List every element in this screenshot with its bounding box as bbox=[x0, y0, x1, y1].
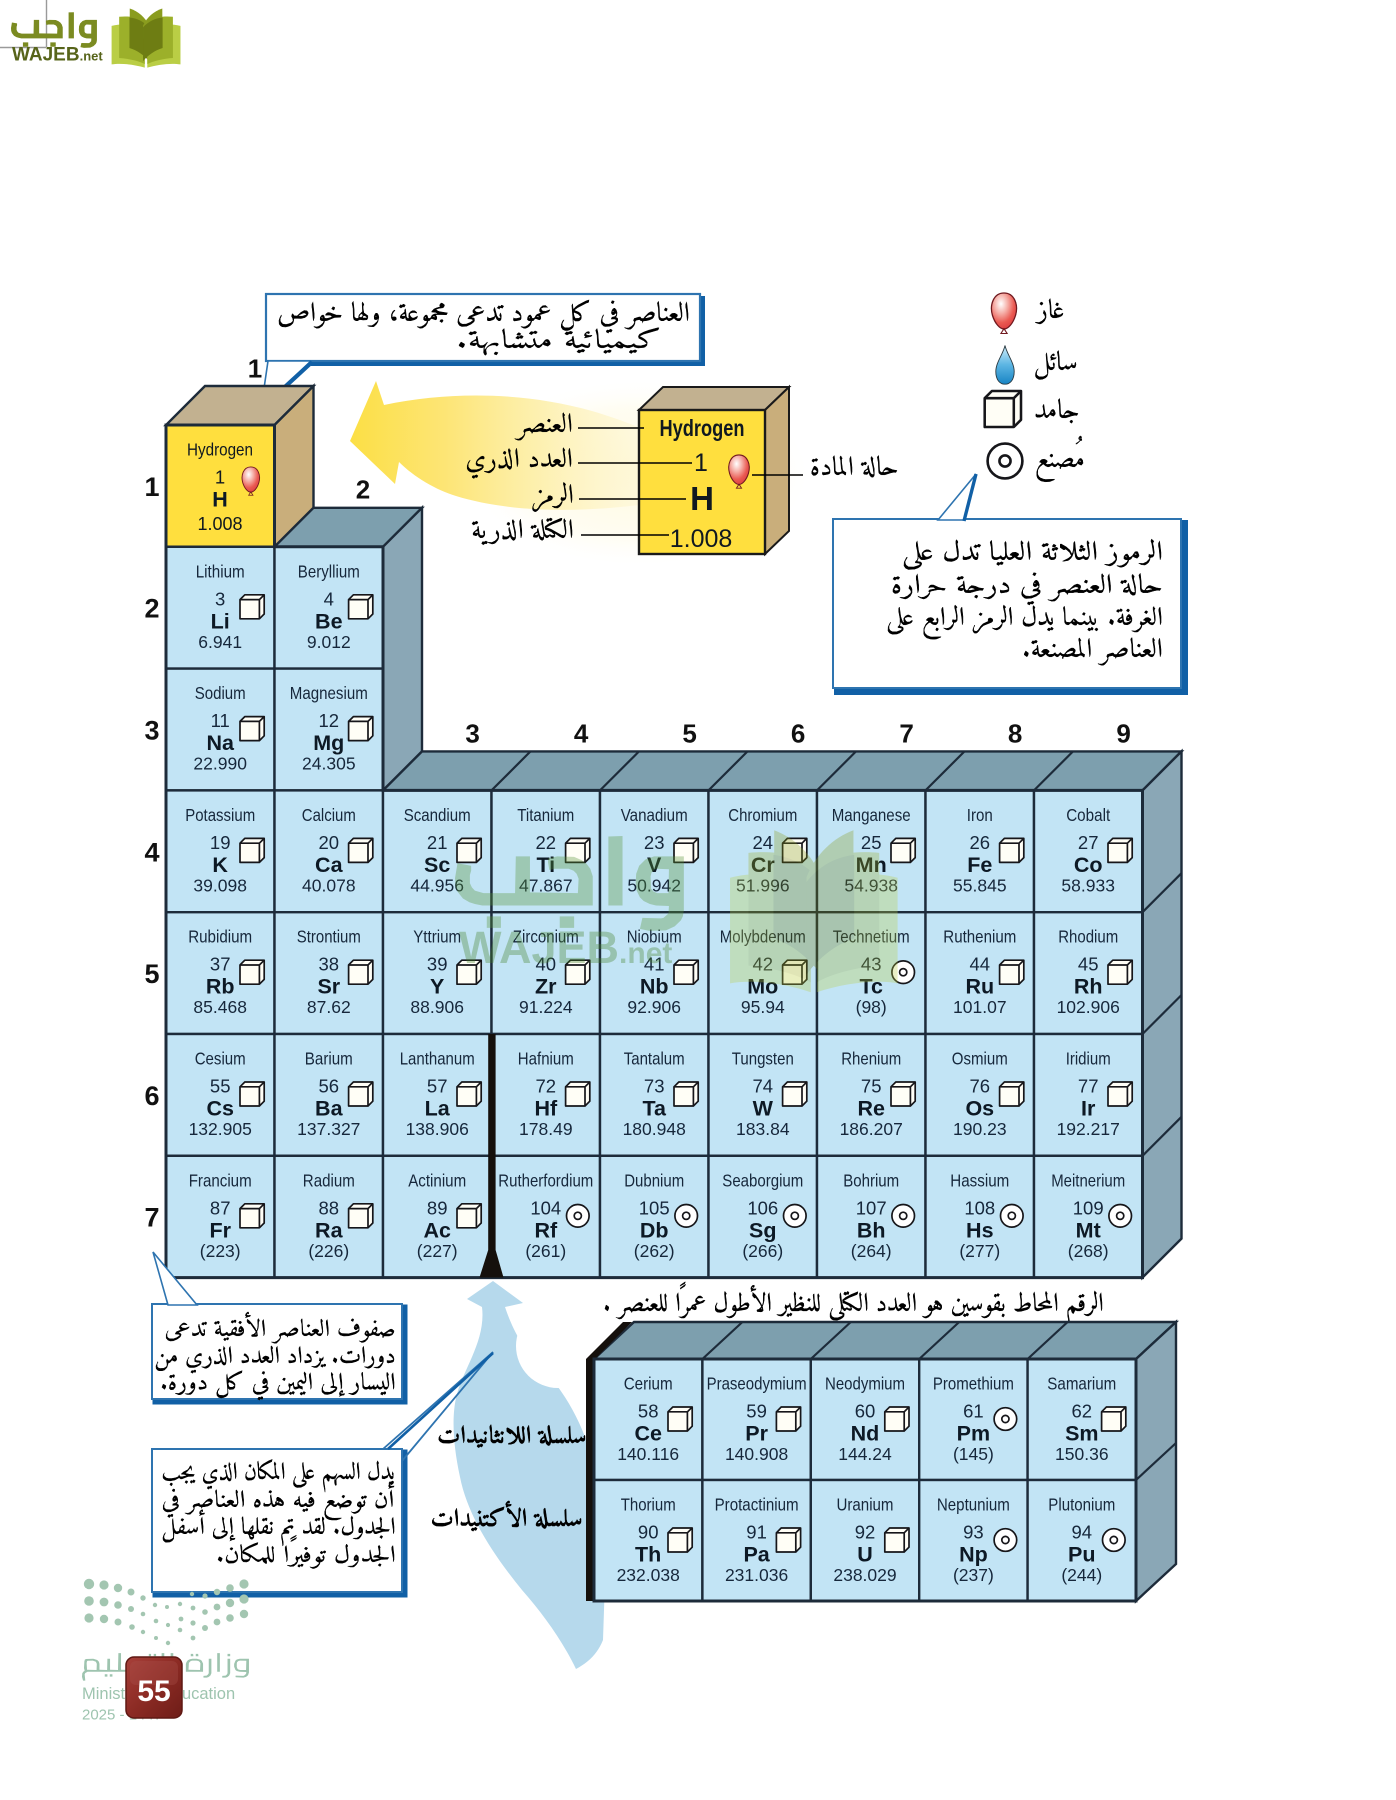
svg-text:Titanium: Titanium bbox=[517, 805, 574, 825]
svg-text:1.008: 1.008 bbox=[197, 514, 242, 534]
svg-text:55: 55 bbox=[210, 1076, 231, 1097]
svg-text:104: 104 bbox=[530, 1197, 561, 1218]
svg-text:Bohrium: Bohrium bbox=[843, 1170, 899, 1190]
svg-text:Francium: Francium bbox=[189, 1170, 252, 1190]
svg-text:59: 59 bbox=[746, 1401, 767, 1422]
svg-text:Sr: Sr bbox=[317, 975, 340, 999]
svg-text:Calcium: Calcium bbox=[302, 805, 356, 825]
svg-text:1: 1 bbox=[694, 449, 708, 477]
svg-text:Ra: Ra bbox=[315, 1218, 344, 1242]
svg-text:21: 21 bbox=[427, 832, 448, 853]
svg-text:178.49: 178.49 bbox=[519, 1119, 573, 1139]
svg-text:Iron: Iron bbox=[967, 805, 993, 825]
svg-text:H: H bbox=[212, 488, 228, 512]
svg-text:Manganese: Manganese bbox=[832, 805, 911, 825]
svg-text:73: 73 bbox=[644, 1076, 665, 1097]
svg-text:(264): (264) bbox=[851, 1241, 892, 1261]
svg-text:56: 56 bbox=[319, 1076, 340, 1097]
svg-text:5: 5 bbox=[144, 959, 159, 989]
svg-text:85.468: 85.468 bbox=[193, 997, 247, 1017]
svg-text:8: 8 bbox=[1008, 718, 1022, 748]
svg-text:94: 94 bbox=[1072, 1522, 1093, 1543]
svg-text:24.305: 24.305 bbox=[302, 754, 356, 774]
svg-text:23: 23 bbox=[644, 832, 665, 853]
svg-text:Ce: Ce bbox=[634, 1422, 662, 1446]
svg-text:Plutonium: Plutonium bbox=[1048, 1495, 1115, 1515]
svg-text:6: 6 bbox=[791, 718, 805, 748]
svg-text:Neodymium: Neodymium bbox=[825, 1374, 905, 1394]
svg-text:91.224: 91.224 bbox=[519, 997, 573, 1017]
svg-text:(262): (262) bbox=[634, 1241, 675, 1261]
svg-text:Sc: Sc bbox=[424, 853, 450, 877]
svg-text:39: 39 bbox=[427, 954, 448, 975]
svg-text:138.906: 138.906 bbox=[406, 1119, 469, 1139]
svg-text:Lithium: Lithium bbox=[196, 561, 245, 581]
svg-text:Vanadium: Vanadium bbox=[621, 805, 688, 825]
svg-text:132.905: 132.905 bbox=[189, 1119, 252, 1139]
svg-text:22: 22 bbox=[536, 832, 557, 853]
svg-text:(223): (223) bbox=[200, 1241, 241, 1261]
svg-text:Rh: Rh bbox=[1074, 975, 1103, 999]
svg-text:183.84: 183.84 bbox=[736, 1119, 790, 1139]
svg-text:45: 45 bbox=[1078, 954, 1099, 975]
svg-text:Lanthanum: Lanthanum bbox=[400, 1049, 475, 1069]
svg-text:150.36: 150.36 bbox=[1055, 1444, 1109, 1464]
svg-text:3: 3 bbox=[215, 588, 225, 609]
svg-text:(237): (237) bbox=[953, 1565, 994, 1585]
svg-text:2: 2 bbox=[144, 594, 159, 624]
svg-text:Barium: Barium bbox=[305, 1049, 353, 1069]
svg-text:Strontium: Strontium bbox=[297, 927, 361, 947]
svg-text:(266): (266) bbox=[742, 1241, 783, 1261]
svg-text:Rf: Rf bbox=[534, 1218, 558, 1242]
svg-text:25: 25 bbox=[861, 832, 882, 853]
svg-text:Y: Y bbox=[430, 975, 444, 999]
svg-text:92.906: 92.906 bbox=[627, 997, 681, 1017]
svg-text:55: 55 bbox=[137, 1675, 170, 1708]
svg-text:74: 74 bbox=[753, 1076, 774, 1097]
svg-text:61: 61 bbox=[963, 1401, 984, 1422]
svg-text:U: U bbox=[857, 1543, 873, 1567]
svg-text:Hassium: Hassium bbox=[950, 1170, 1009, 1190]
svg-text:Bh: Bh bbox=[857, 1218, 886, 1242]
svg-text:Th: Th bbox=[635, 1543, 661, 1567]
svg-text:7: 7 bbox=[144, 1203, 159, 1233]
svg-text:180.948: 180.948 bbox=[623, 1119, 686, 1139]
svg-text:Sm: Sm bbox=[1065, 1422, 1098, 1446]
svg-text:Rhodium: Rhodium bbox=[1058, 927, 1118, 947]
svg-text:Li: Li bbox=[211, 609, 230, 633]
svg-text:4: 4 bbox=[574, 718, 589, 748]
svg-text:9: 9 bbox=[1116, 718, 1130, 748]
svg-text:Na: Na bbox=[206, 731, 235, 755]
svg-text:1: 1 bbox=[248, 354, 262, 384]
svg-text:87: 87 bbox=[210, 1197, 231, 1218]
svg-text:140.908: 140.908 bbox=[725, 1444, 788, 1464]
svg-text:4: 4 bbox=[324, 588, 334, 609]
svg-text:88: 88 bbox=[319, 1197, 340, 1218]
svg-text:Ca: Ca bbox=[315, 853, 344, 877]
svg-text:Hs: Hs bbox=[966, 1218, 994, 1242]
svg-text:Ta: Ta bbox=[642, 1097, 667, 1121]
svg-text:58.933: 58.933 bbox=[1061, 875, 1115, 895]
svg-text:238.029: 238.029 bbox=[833, 1565, 896, 1585]
svg-text:105: 105 bbox=[639, 1197, 670, 1218]
svg-text:La: La bbox=[425, 1097, 451, 1121]
svg-text:Potassium: Potassium bbox=[185, 805, 255, 825]
svg-text:Uranium: Uranium bbox=[837, 1495, 894, 1515]
svg-text:Promethium: Promethium bbox=[933, 1374, 1014, 1394]
svg-text:W: W bbox=[753, 1097, 774, 1121]
svg-text:Cesium: Cesium bbox=[195, 1049, 246, 1069]
svg-text:Sg: Sg bbox=[749, 1218, 776, 1242]
svg-text:Scandium: Scandium bbox=[404, 805, 471, 825]
svg-text:1: 1 bbox=[215, 467, 225, 488]
svg-text:76: 76 bbox=[970, 1076, 991, 1097]
svg-text:4: 4 bbox=[144, 837, 159, 867]
svg-text:60: 60 bbox=[855, 1401, 876, 1422]
svg-text:57: 57 bbox=[427, 1076, 448, 1097]
svg-text:192.217: 192.217 bbox=[1057, 1119, 1120, 1139]
svg-text:20: 20 bbox=[319, 832, 340, 853]
svg-text:Cerium: Cerium bbox=[624, 1374, 673, 1394]
svg-text:Ba: Ba bbox=[315, 1097, 344, 1121]
svg-text:(261): (261) bbox=[525, 1241, 566, 1261]
svg-text:Tantalum: Tantalum bbox=[624, 1049, 685, 1069]
svg-text:Magnesium: Magnesium bbox=[290, 683, 368, 703]
svg-text:Os: Os bbox=[965, 1097, 994, 1121]
svg-text:Rb: Rb bbox=[206, 975, 235, 999]
svg-text:(227): (227) bbox=[417, 1241, 458, 1261]
svg-text:91: 91 bbox=[746, 1522, 767, 1543]
svg-text:101.07: 101.07 bbox=[953, 997, 1007, 1017]
svg-text:K: K bbox=[212, 853, 228, 877]
svg-text:7: 7 bbox=[899, 718, 913, 748]
svg-text:Pr: Pr bbox=[745, 1422, 768, 1446]
svg-text:Hf: Hf bbox=[534, 1097, 558, 1121]
svg-text:88.906: 88.906 bbox=[410, 997, 464, 1017]
svg-text:75: 75 bbox=[861, 1076, 882, 1097]
svg-text:19: 19 bbox=[210, 832, 231, 853]
svg-text:11: 11 bbox=[211, 710, 230, 731]
svg-text:Hydrogen: Hydrogen bbox=[187, 440, 253, 460]
svg-text:90: 90 bbox=[638, 1522, 659, 1543]
svg-text:1: 1 bbox=[144, 472, 159, 502]
svg-text:Radium: Radium bbox=[303, 1170, 355, 1190]
svg-text:Be: Be bbox=[315, 609, 343, 633]
svg-text:58: 58 bbox=[638, 1401, 659, 1422]
svg-text:108: 108 bbox=[964, 1197, 995, 1218]
svg-text:5: 5 bbox=[682, 718, 696, 748]
svg-text:Osmium: Osmium bbox=[952, 1049, 1008, 1069]
svg-text:Mt: Mt bbox=[1076, 1218, 1101, 1242]
svg-text:Ac: Ac bbox=[423, 1218, 451, 1242]
svg-text:40.078: 40.078 bbox=[302, 875, 356, 895]
svg-text:186.207: 186.207 bbox=[840, 1119, 903, 1139]
svg-text:Mg: Mg bbox=[313, 731, 344, 755]
svg-text:95.94: 95.94 bbox=[741, 997, 785, 1017]
svg-text:44: 44 bbox=[970, 954, 991, 975]
svg-text:24: 24 bbox=[753, 832, 774, 853]
svg-text:(145): (145) bbox=[953, 1444, 994, 1464]
svg-text:93: 93 bbox=[963, 1522, 984, 1543]
svg-text:106: 106 bbox=[747, 1197, 778, 1218]
svg-text:Ruthenium: Ruthenium bbox=[943, 927, 1016, 947]
svg-text:27: 27 bbox=[1078, 832, 1099, 853]
svg-text:Fr: Fr bbox=[209, 1218, 231, 1242]
svg-text:Iridium: Iridium bbox=[1066, 1049, 1111, 1069]
svg-text:231.036: 231.036 bbox=[725, 1565, 788, 1585]
svg-text:6.941: 6.941 bbox=[198, 632, 242, 652]
svg-text:WAJEB.net: WAJEB.net bbox=[12, 45, 103, 66]
svg-text:77: 77 bbox=[1078, 1076, 1099, 1097]
svg-text:Rubidium: Rubidium bbox=[188, 927, 252, 947]
svg-text:Hafnium: Hafnium bbox=[518, 1049, 574, 1069]
svg-text:39.098: 39.098 bbox=[193, 875, 247, 895]
svg-text:107: 107 bbox=[856, 1197, 887, 1218]
svg-text:72: 72 bbox=[536, 1076, 557, 1097]
svg-text:Rutherfordium: Rutherfordium bbox=[498, 1170, 593, 1190]
svg-text:Db: Db bbox=[640, 1218, 669, 1242]
svg-text:Fe: Fe bbox=[967, 853, 992, 877]
svg-text:(226): (226) bbox=[308, 1241, 349, 1261]
svg-text:(268): (268) bbox=[1068, 1241, 1109, 1261]
svg-text:Nb: Nb bbox=[640, 975, 669, 999]
svg-text:140.116: 140.116 bbox=[617, 1444, 679, 1464]
svg-text:12: 12 bbox=[319, 710, 340, 731]
svg-text:Neptunium: Neptunium bbox=[937, 1495, 1010, 1515]
svg-text:9.012: 9.012 bbox=[307, 632, 351, 652]
svg-text:190.23: 190.23 bbox=[953, 1119, 1007, 1139]
svg-text:Zr: Zr bbox=[535, 975, 557, 999]
svg-text:144.24: 144.24 bbox=[838, 1444, 892, 1464]
svg-text:Pm: Pm bbox=[957, 1422, 990, 1446]
svg-text:22.990: 22.990 bbox=[193, 754, 247, 774]
svg-text:3: 3 bbox=[144, 716, 159, 746]
svg-text:(244): (244) bbox=[1061, 1565, 1102, 1585]
svg-text:102.906: 102.906 bbox=[1057, 997, 1120, 1017]
svg-text:Co: Co bbox=[1074, 853, 1103, 877]
svg-text:Pu: Pu bbox=[1068, 1543, 1095, 1567]
svg-text:Actinium: Actinium bbox=[408, 1170, 466, 1190]
svg-text:109: 109 bbox=[1073, 1197, 1104, 1218]
svg-text:Beryllium: Beryllium bbox=[298, 561, 360, 581]
svg-text:Re: Re bbox=[857, 1097, 885, 1121]
svg-text:3: 3 bbox=[465, 718, 479, 748]
svg-text:(277): (277) bbox=[959, 1241, 1000, 1261]
svg-text:92: 92 bbox=[855, 1522, 876, 1543]
svg-text:55.845: 55.845 bbox=[953, 875, 1007, 895]
svg-text:Rhenium: Rhenium bbox=[841, 1049, 901, 1069]
svg-text:62: 62 bbox=[1072, 1401, 1093, 1422]
svg-text:Samarium: Samarium bbox=[1047, 1374, 1116, 1394]
svg-text:Ir: Ir bbox=[1081, 1097, 1096, 1121]
svg-text:137.327: 137.327 bbox=[297, 1119, 360, 1139]
svg-text:Thorium: Thorium bbox=[621, 1495, 676, 1515]
svg-text:Dubnium: Dubnium bbox=[624, 1170, 684, 1190]
svg-text:Nd: Nd bbox=[851, 1422, 880, 1446]
svg-text:Cs: Cs bbox=[206, 1097, 234, 1121]
svg-text:Sodium: Sodium bbox=[195, 683, 246, 703]
svg-text:Hydrogen: Hydrogen bbox=[660, 415, 745, 441]
svg-text:89: 89 bbox=[427, 1197, 448, 1218]
svg-text:38: 38 bbox=[319, 954, 340, 975]
svg-text:Praseodymium: Praseodymium bbox=[707, 1374, 807, 1394]
svg-text:Pa: Pa bbox=[743, 1543, 770, 1567]
svg-text:26: 26 bbox=[970, 832, 991, 853]
svg-text:Meitnerium: Meitnerium bbox=[1051, 1170, 1125, 1190]
svg-text:1.008: 1.008 bbox=[670, 525, 733, 553]
svg-text:Ru: Ru bbox=[965, 975, 994, 999]
svg-text:(98): (98) bbox=[856, 997, 887, 1017]
svg-text:87.62: 87.62 bbox=[307, 997, 351, 1017]
svg-text:Np: Np bbox=[959, 1543, 988, 1567]
svg-text:Chromium: Chromium bbox=[728, 805, 797, 825]
svg-text:2: 2 bbox=[356, 475, 370, 505]
svg-text:Seaborgium: Seaborgium bbox=[722, 1170, 803, 1190]
svg-text:H: H bbox=[690, 480, 714, 517]
svg-text:Protactinium: Protactinium bbox=[715, 1495, 799, 1515]
svg-text:Tungsten: Tungsten bbox=[732, 1049, 794, 1069]
svg-text:Yttrium: Yttrium bbox=[413, 927, 461, 947]
svg-text:6: 6 bbox=[144, 1081, 159, 1111]
svg-text:232.038: 232.038 bbox=[617, 1565, 680, 1585]
svg-text:Cobalt: Cobalt bbox=[1066, 805, 1110, 825]
svg-text:37: 37 bbox=[210, 954, 231, 975]
